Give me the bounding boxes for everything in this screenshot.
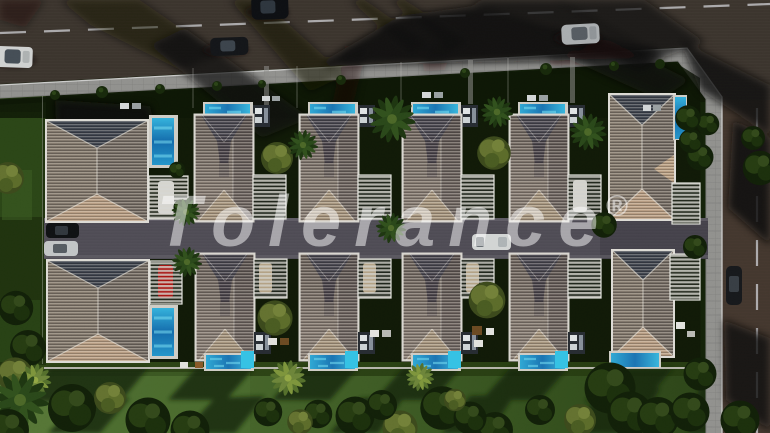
svg-text:®: ® (606, 190, 628, 223)
svg-text:Tolerance: Tolerance (157, 182, 611, 262)
